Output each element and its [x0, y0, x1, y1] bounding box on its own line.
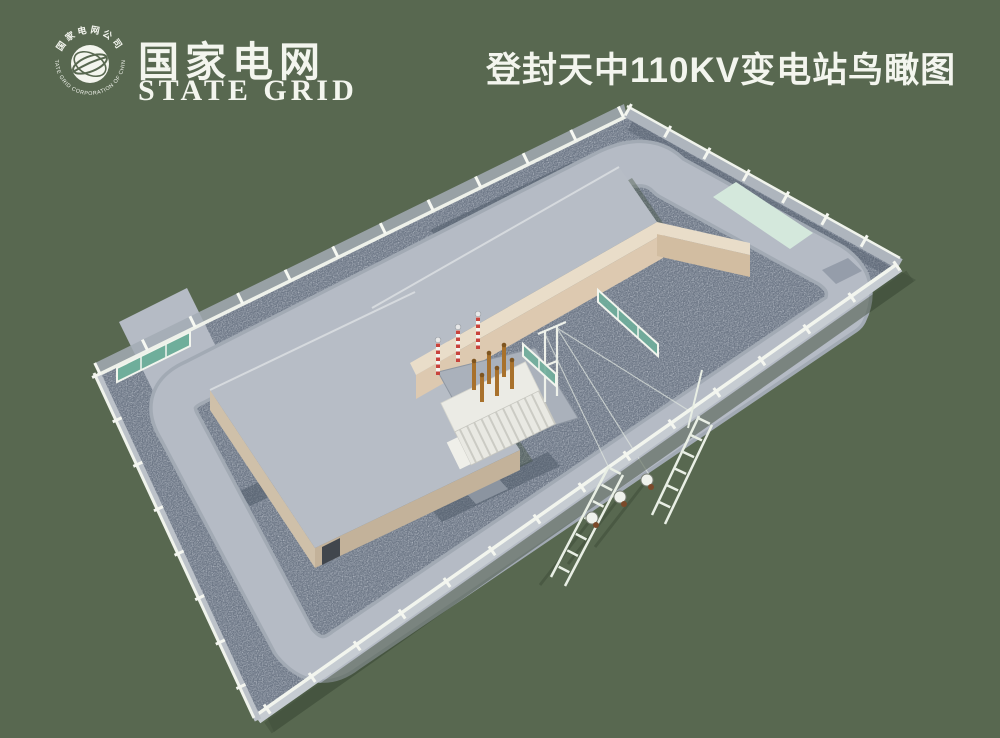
page-title: 登封天中110KV变电站鸟瞰图 [486, 42, 956, 93]
logo-name-en: STATE GRID [138, 74, 358, 108]
emblem-globe [70, 45, 110, 83]
substation-rendering [0, 0, 1000, 738]
state-grid-emblem-icon: 国家电网公司 STATE GRID CORPORATION OF CHINA [50, 20, 130, 104]
poster-page: 国家电网公司 STATE GRID CORPORATION OF CHINA 国… [0, 0, 1000, 738]
